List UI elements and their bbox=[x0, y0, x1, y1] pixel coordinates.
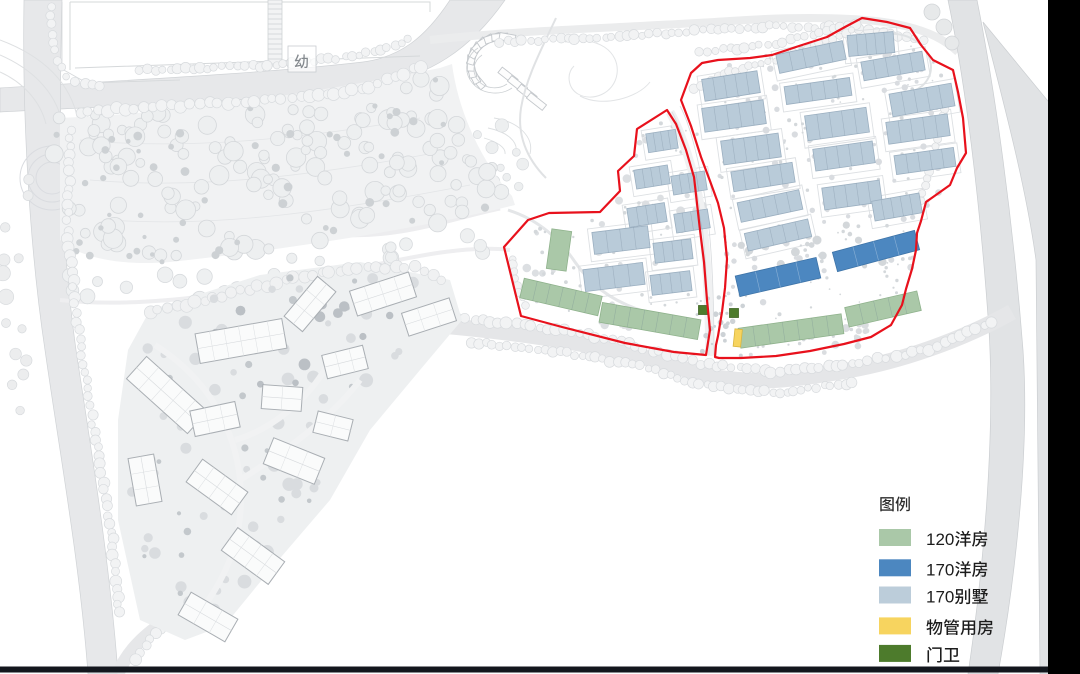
svg-text:120: 120 bbox=[926, 530, 954, 549]
svg-text:170: 170 bbox=[926, 588, 954, 607]
svg-text:170: 170 bbox=[926, 561, 954, 580]
